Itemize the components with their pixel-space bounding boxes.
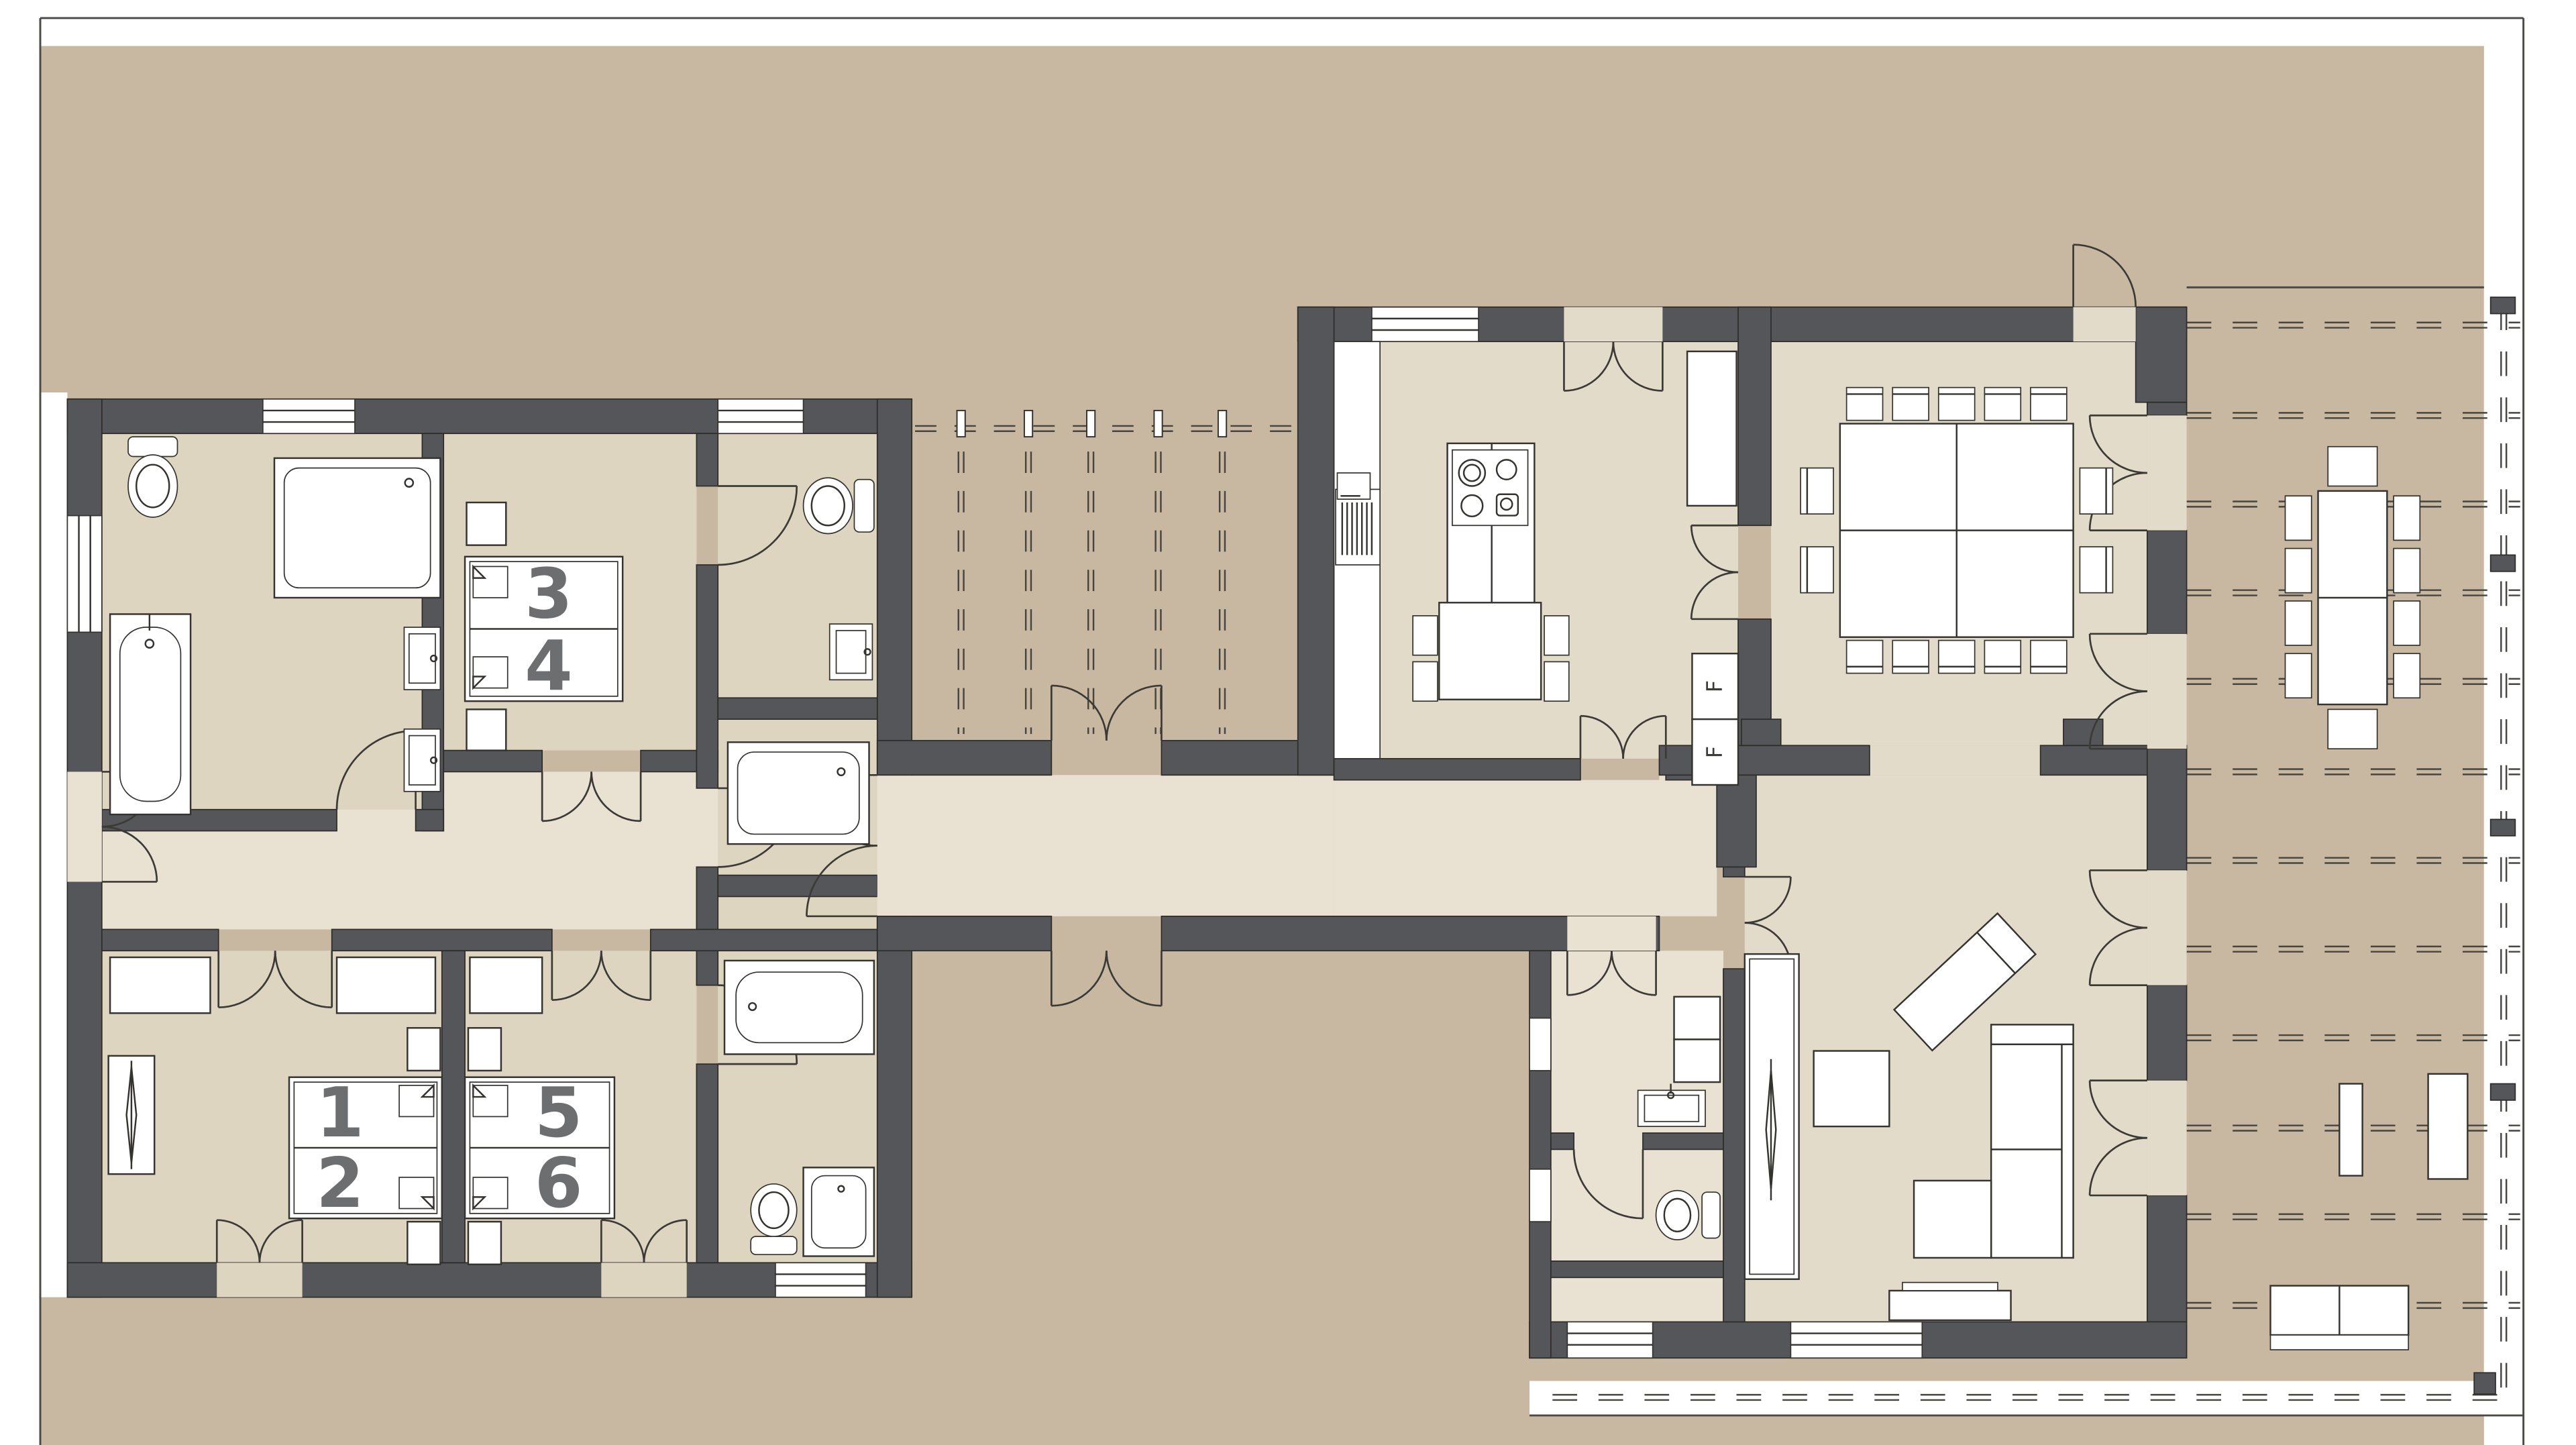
dining-french-door-a-opening (2147, 415, 2187, 530)
standing-mirror-icon (109, 1056, 155, 1174)
courtyard-post-icon (1024, 411, 1032, 437)
bathtub-icon (724, 961, 874, 1055)
cooktop-icon (1452, 450, 1528, 526)
washbasin-icon (1638, 1084, 1705, 1127)
closet-box (1674, 1039, 1721, 1082)
dining-table (1840, 424, 2074, 637)
toilet-icon (128, 437, 177, 517)
nightstand (407, 1222, 440, 1265)
terrace-east-edge-strip (2484, 287, 2524, 1415)
hall-corner-floor (1659, 775, 1717, 916)
toilet-icon (751, 1184, 797, 1254)
chair (2328, 709, 2377, 749)
sink-icon (830, 624, 873, 680)
living-french-door-a-opening (2147, 870, 2187, 985)
chair (2394, 496, 2420, 540)
floor-plan-svg: 3 4 1 2 5 6 (0, 0, 2576, 1445)
chair (1544, 661, 1569, 701)
shower-icon (804, 1167, 874, 1256)
chair (2328, 447, 2377, 486)
courtyard-post-icon (1087, 411, 1095, 437)
outdoor-side-table (2339, 1084, 2362, 1176)
chair (2394, 653, 2420, 698)
pergola-post-icon (2491, 297, 2516, 313)
courtyard-post-icon (957, 411, 965, 437)
wardrobe (470, 957, 542, 1013)
pantry-cabinet (1687, 352, 1736, 506)
fridge-label: F (1702, 680, 1727, 692)
nightstand (468, 1028, 501, 1071)
wc-west-window (1529, 1169, 1551, 1222)
island-table (1439, 602, 1541, 699)
dining-french-door-b-opening (2147, 634, 2187, 749)
nightstand (467, 709, 506, 750)
bed-3-4: 3 4 (465, 554, 623, 706)
freezer-label: F (1702, 746, 1727, 758)
entry-hall-door-opening (1567, 916, 1656, 951)
sink-icon (404, 729, 440, 792)
dining-ne-door-opening (2074, 307, 2136, 341)
floor-plan-page: 3 4 1 2 5 6 (0, 0, 2576, 1445)
living-french-door-b-opening (2147, 1081, 2187, 1195)
nightstand (407, 1028, 440, 1071)
bedroom-56-terrace-door-opening (601, 1263, 686, 1297)
bed-label-4: 4 (525, 627, 573, 706)
closet-box (1674, 997, 1721, 1040)
chair (1544, 616, 1569, 655)
ottoman (1914, 1181, 1991, 1258)
bathtub-icon (110, 614, 191, 814)
bed-label-5: 5 (535, 1073, 583, 1153)
shower-icon (274, 458, 440, 598)
courtyard-post-icon (1218, 411, 1226, 437)
fridge-freezer: F F (1692, 653, 1738, 785)
west-path-strip (40, 392, 67, 1297)
sideboard-cabinet (1745, 954, 1799, 1279)
chair (2394, 601, 2420, 645)
pergola-corner-post-icon (2474, 1373, 2495, 1394)
tv-console (1889, 1283, 2010, 1320)
kitchen-north-window (1372, 307, 1479, 341)
bed-1-2: 1 2 (289, 1073, 442, 1224)
nightstand (467, 502, 506, 545)
pergola-post-icon (2491, 819, 2516, 835)
wardrobe (110, 957, 210, 1013)
shower-tray-icon (728, 742, 869, 844)
chair (2286, 601, 2312, 645)
chair (2286, 549, 2312, 593)
living-south-window (1790, 1322, 1922, 1358)
bed-label-1: 1 (316, 1073, 364, 1153)
chair (2286, 496, 2312, 540)
outdoor-bench (2428, 1074, 2468, 1179)
chair (2394, 549, 2420, 593)
wardrobe (337, 957, 435, 1013)
dining-living-opening-floor (1870, 745, 2041, 775)
dining-furniture (1801, 388, 2112, 674)
corridor-opening (877, 775, 912, 916)
bed-label-3: 3 (525, 554, 573, 634)
courtyard-post-icon (1154, 411, 1162, 437)
chair (1413, 661, 1438, 701)
chair (2286, 653, 2312, 698)
bed-label-6: 6 (535, 1144, 583, 1224)
coffee-table (1814, 1051, 1890, 1127)
entry-hall-west-window (1529, 1018, 1551, 1071)
outdoor-sofa (2270, 1286, 2408, 1350)
toilet-icon (804, 478, 874, 533)
bed-label-2: 2 (316, 1144, 364, 1224)
sink-icon (404, 627, 440, 690)
corridor-floor (877, 775, 1334, 916)
site-top-band (40, 18, 2524, 46)
west-entrance-opening (67, 771, 101, 881)
kitchen-courtyard-door-opening (1564, 307, 1662, 341)
nightstand (468, 1222, 501, 1265)
toilet-icon (1656, 1191, 1721, 1240)
bedroom-12-terrace-door-opening (217, 1263, 302, 1297)
pergola-post-icon (2491, 1084, 2516, 1100)
chair (1413, 616, 1438, 655)
pergola-post-icon (2491, 555, 2516, 571)
entry-hall-south-window (1567, 1322, 1652, 1358)
terrace-south-edge-strip (1529, 1381, 2524, 1415)
bed-5-6: 5 6 (465, 1073, 614, 1224)
